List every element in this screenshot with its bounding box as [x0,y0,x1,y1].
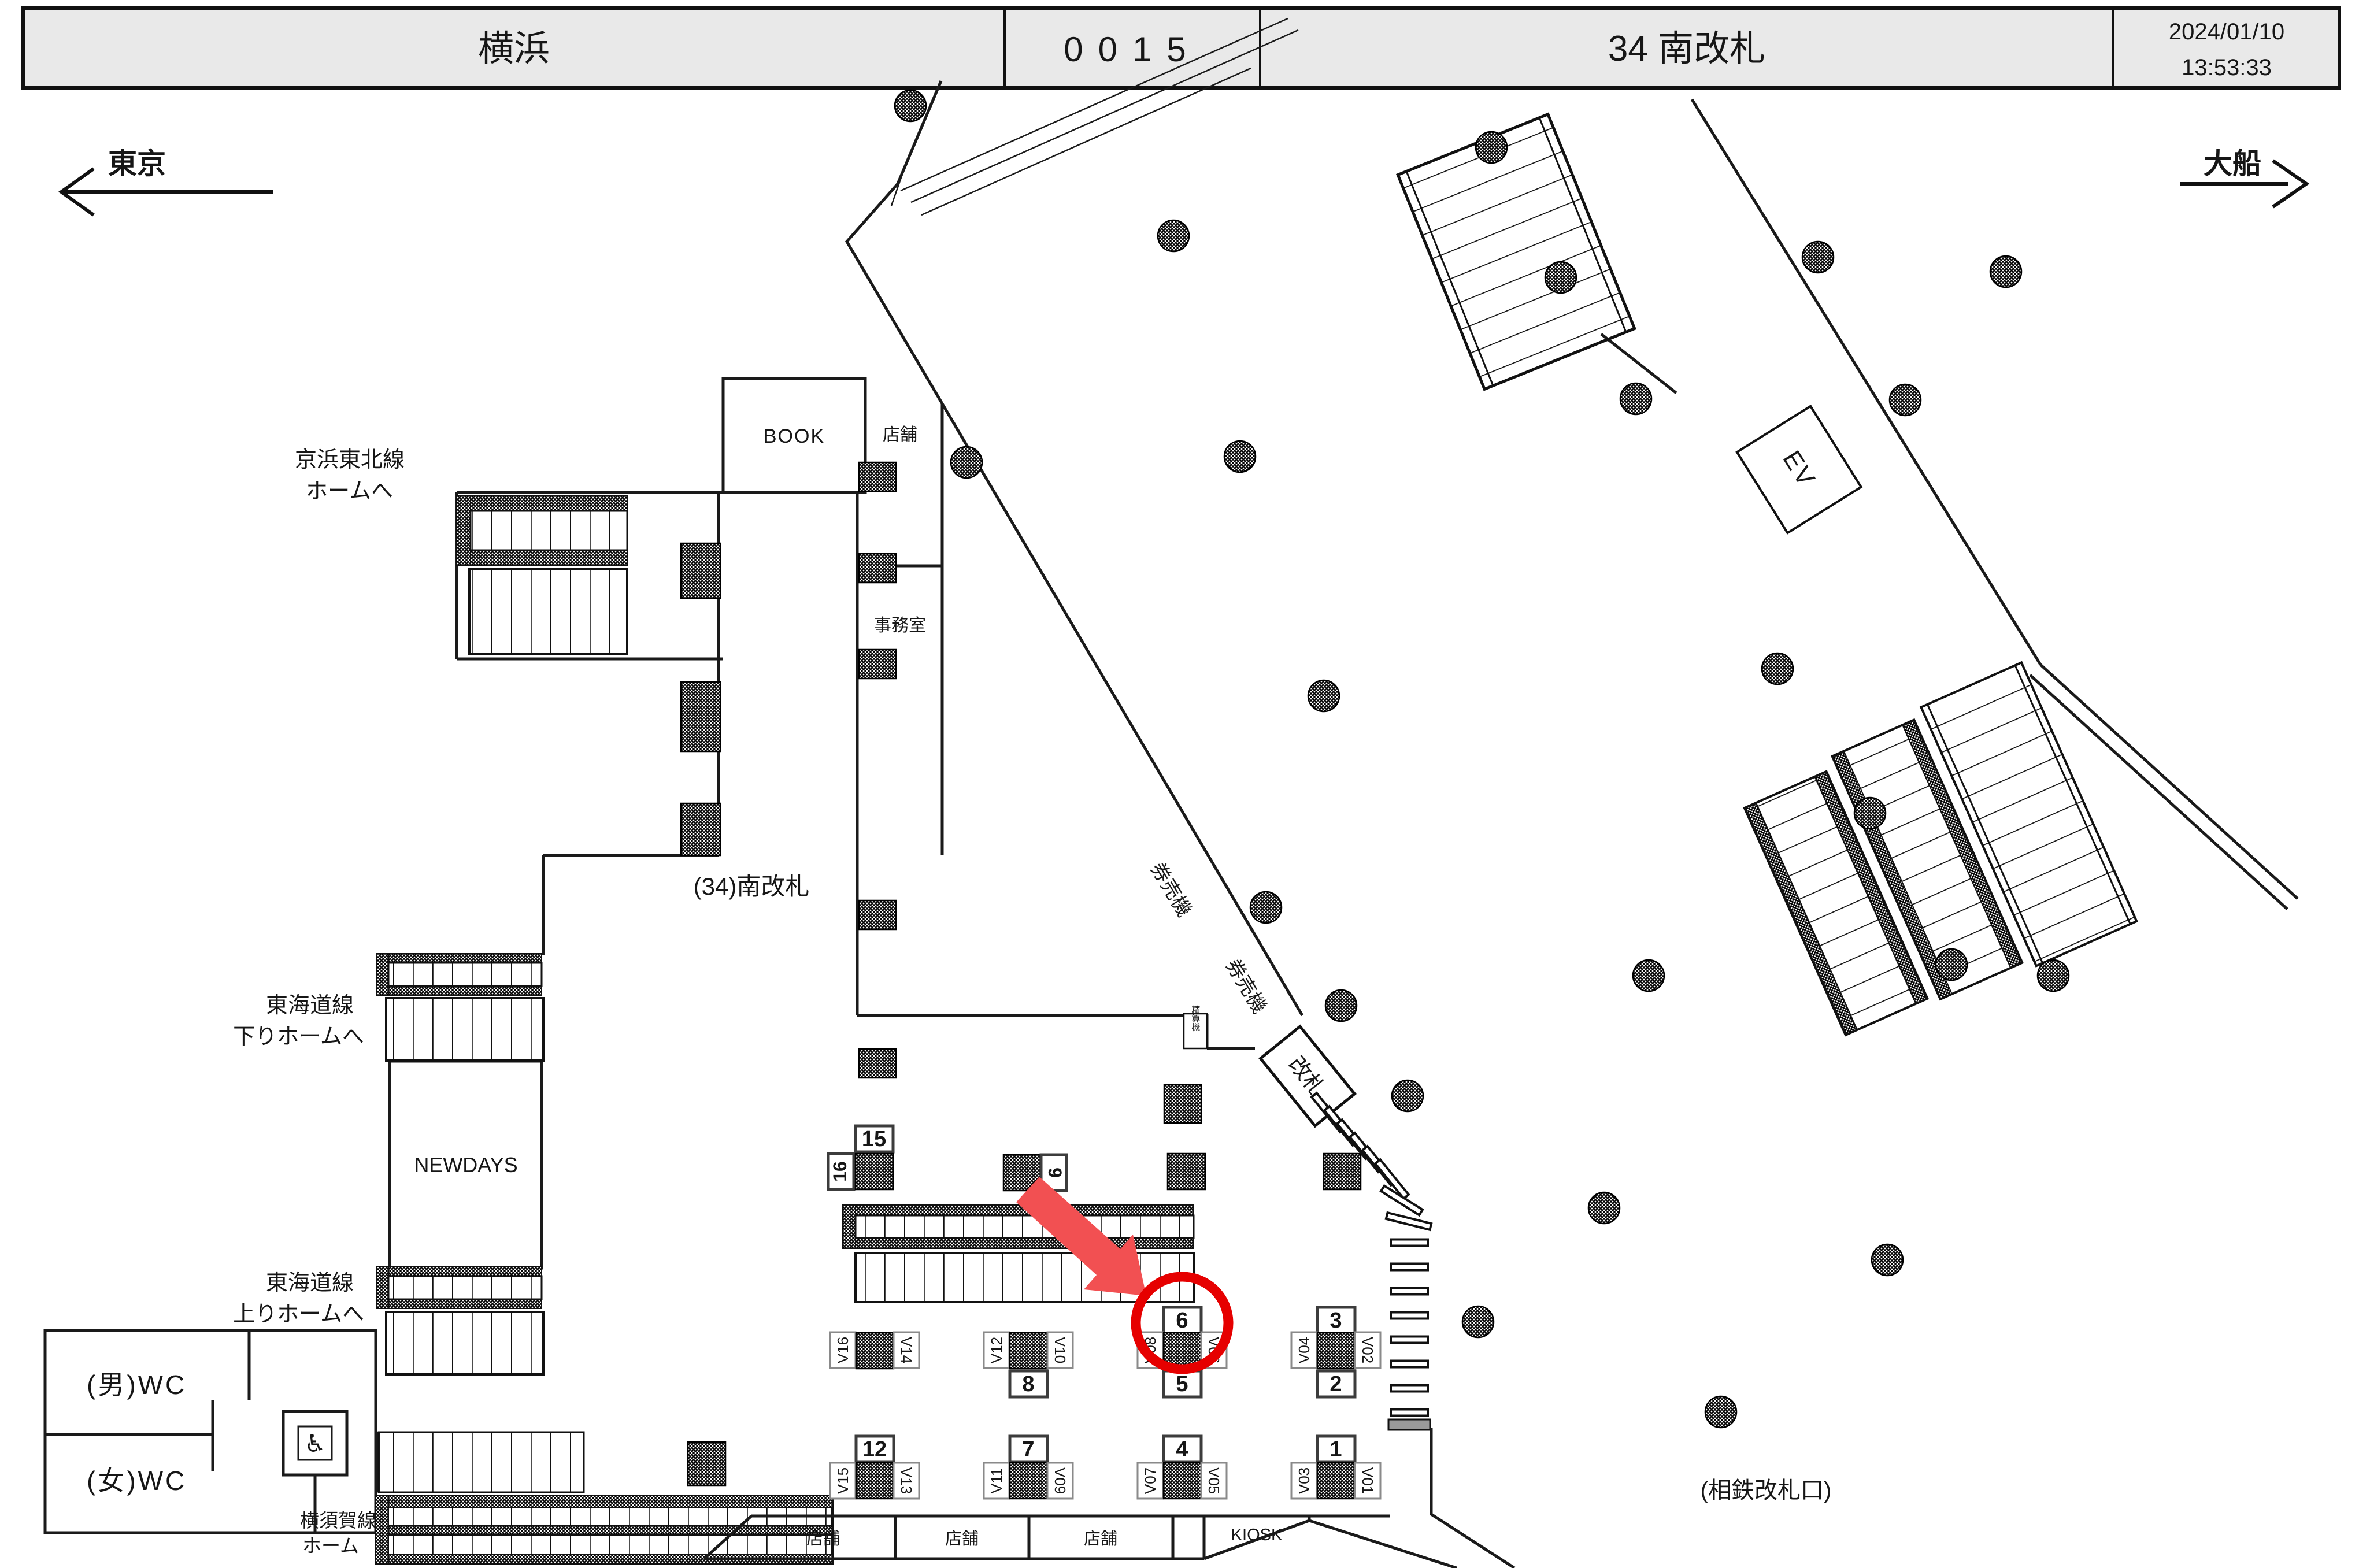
tokaido-down-label-2: 下りホームへ [233,1025,364,1049]
unit-label: 4 [1176,1437,1188,1462]
pillar [1164,1463,1201,1499]
unit-label: 9 [1045,1167,1065,1178]
unit-label: 16 [829,1161,850,1182]
header-location: 34 南改札 [1608,29,1765,69]
header-time: 13:53:33 [2182,55,2272,80]
unit-label: V02 [1359,1337,1376,1363]
unit-label: V16 [834,1337,851,1363]
pillar [856,1333,894,1369]
gate34-label: (34)南改札 [694,873,810,900]
wc-men-label: (男)WC [87,1370,187,1400]
pillar [1010,1463,1047,1499]
unit-label: V13 [898,1467,915,1494]
yokosuka-line-label-2: ホーム [302,1535,359,1556]
pillar [1317,1463,1355,1499]
unit-label: 15 [862,1127,886,1151]
pillar [856,1463,894,1499]
unit-v16-v14: V16 V14 [830,1332,919,1369]
pillar-plain [1168,1154,1205,1189]
shop2-label: 店舗 [945,1529,979,1548]
wheelchair-icon: ♿ [304,1430,326,1457]
unit-label: V14 [898,1337,915,1363]
wc-women-label: (女)WC [87,1466,187,1496]
tokaido-up-label-1: 東海道線 [266,1271,354,1295]
circled-unit-label: 6 [1176,1308,1188,1333]
office-label: 事務室 [874,616,926,635]
unit-label: 12 [862,1437,887,1462]
stairs-tokaido-down [377,954,543,1061]
unit-label: V01 [1359,1467,1376,1494]
newdays-label: NEWDAYS [414,1153,517,1177]
unit-label: V09 [1051,1467,1069,1494]
unit-label: 3 [1330,1308,1342,1333]
yokosuka-line-label-1: 横須賀線 [300,1510,376,1531]
unit-label: 5 [1176,1372,1188,1396]
shop-column-label: 店舗 [883,425,917,444]
sotetsu-gate-label: (相鉄改札口) [1701,1478,1832,1503]
unit-label: V07 [1142,1467,1159,1494]
header-bar: 横浜 0015 34 南改札 2024/01/10 13:53:33 [23,8,2339,88]
unit-label: V04 [1295,1337,1313,1363]
floorplan-canvas: 横浜 0015 34 南改札 2024/01/10 13:53:33 東京 大船 [0,0,2359,1568]
pillar [1317,1333,1355,1369]
station-map-screen: 横浜 0015 34 南改札 2024/01/10 13:53:33 東京 大船 [0,0,2359,1568]
unit-label: V11 [988,1468,1005,1493]
unit-label: 2 [1330,1372,1342,1396]
pillar [856,1154,893,1189]
tokaido-up-label-2: 上りホームへ [233,1302,364,1326]
shop1-label: 店舗 [806,1529,840,1548]
unit-label: V10 [1051,1337,1069,1363]
unit-label: V05 [1205,1467,1223,1494]
kiosk-label: KIOSK [1231,1526,1283,1544]
shop3-label: 店舗 [1084,1529,1117,1548]
header-station: 横浜 [478,29,550,69]
header-date: 2024/01/10 [2169,19,2284,45]
unit-label: 8 [1022,1372,1034,1396]
unit-label: 1 [1330,1437,1342,1462]
unit-label: V15 [834,1467,851,1494]
unit-label: 7 [1022,1437,1034,1462]
tokaido-down-label-1: 東海道線 [266,994,354,1018]
stairs-keihin-tohoku [457,496,627,654]
direction-right-label: 大船 [2204,147,2261,180]
keihin-line-label-2: ホームへ [306,479,393,503]
pillar [1010,1333,1047,1369]
stairs-tokaido-up [377,1267,543,1374]
direction-left-label: 東京 [108,147,166,180]
book-label: BOOK [764,425,825,447]
fare-adjustment-label: 精算機 [1191,1006,1201,1032]
unit-label: V03 [1295,1467,1313,1494]
keihin-line-label-1: 京浜東北線 [295,448,405,472]
header-train-no: 0015 [1064,30,1201,69]
unit-label: V12 [988,1337,1005,1363]
